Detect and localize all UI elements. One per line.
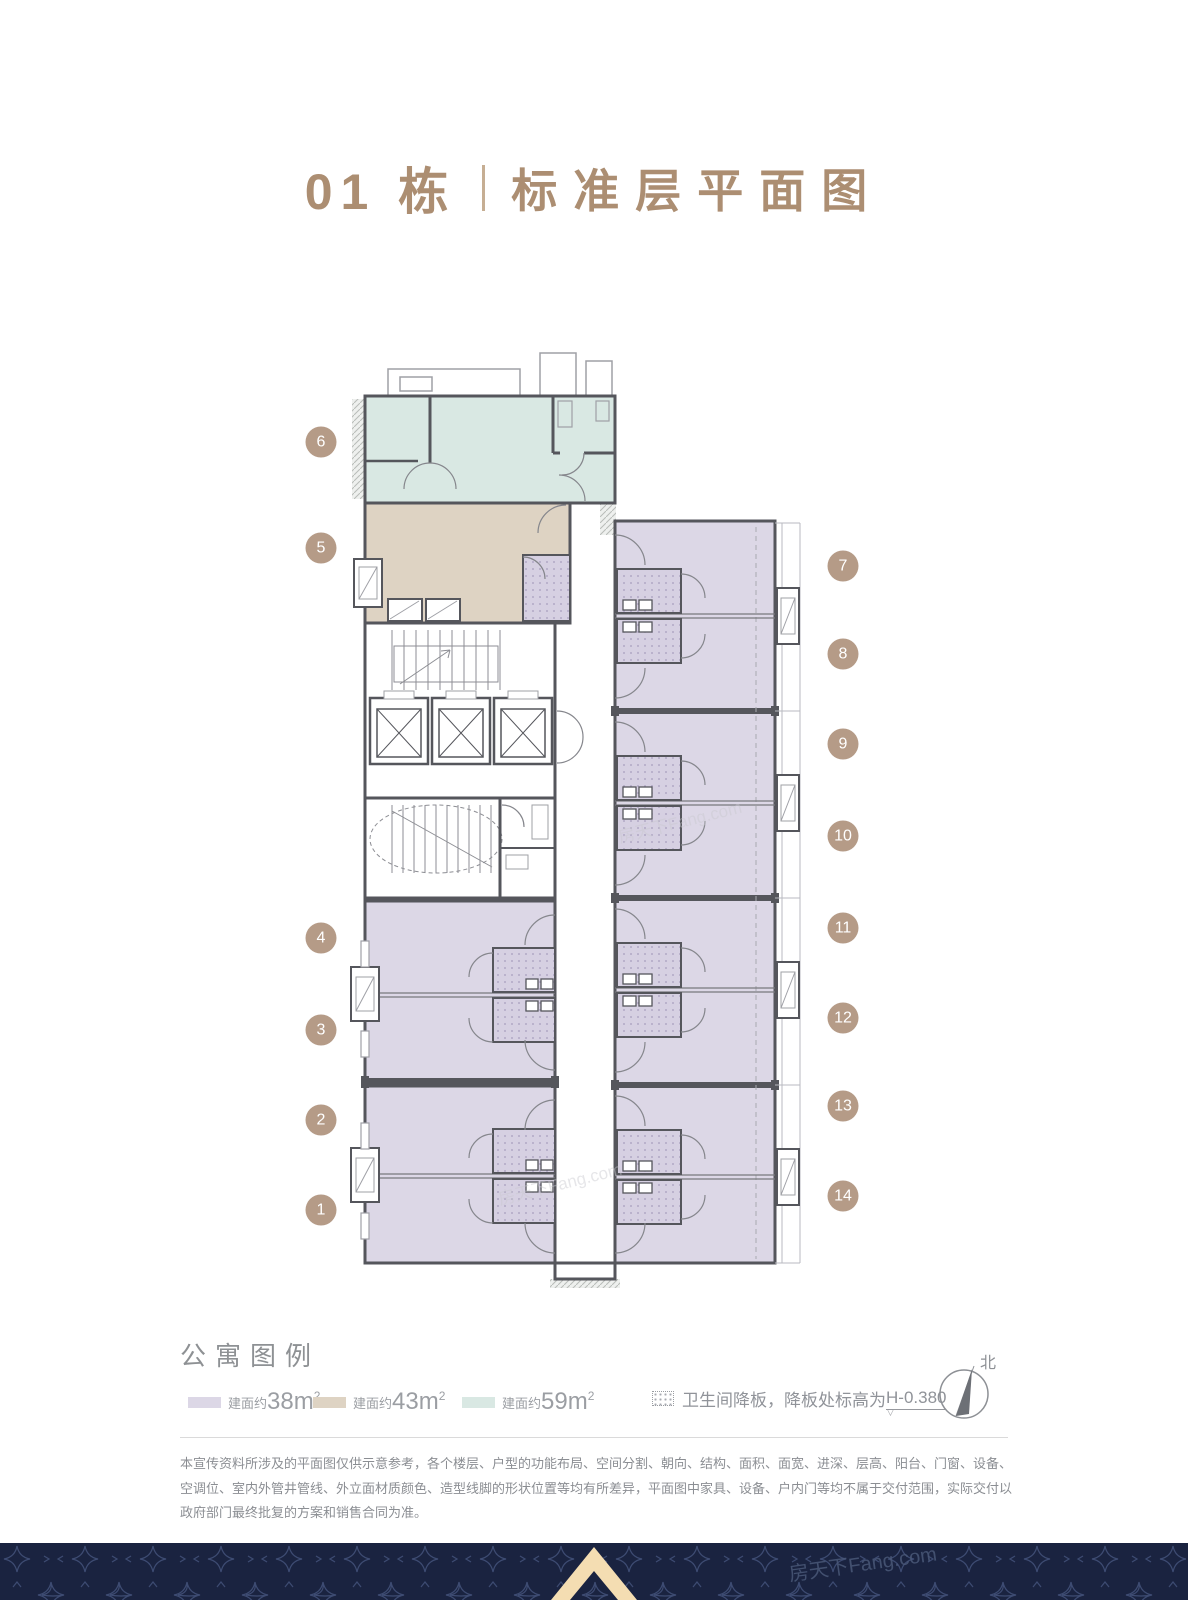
unit-6-area-59 [365,396,615,503]
page-title: 01 栋 标准层平面图 [0,152,1188,224]
unit-badge-4: 4 [306,923,337,954]
drop-slab-text: 卫生间降板，降板处标高为 [682,1386,886,1411]
legend-title: 公寓图例 [180,1336,1008,1373]
drop-slab-swatch [652,1391,674,1406]
legend-prefix: 建面约 [502,1393,541,1412]
unit-badge-12: 12 [828,1003,859,1034]
compass-north-label: 北 [980,1354,996,1372]
footer-band: 房天下Fang.com [0,1543,1188,1600]
unit-badge-9: 9 [828,729,859,760]
legend-swatch-43 [313,1397,346,1408]
floor-plan: 房天下Fang.com 房天下Fang.com 1 2 3 4 5 6 7 8 … [300,343,870,1293]
unit-badge-1: 1 [306,1195,337,1226]
building-number: 01 栋 [305,152,457,224]
legend-area-value: 43m2 [392,1388,445,1416]
legend-prefix: 建面约 [353,1393,392,1412]
legend-item-43: 建面约 43m2 [313,1388,445,1416]
unit-badge-11: 11 [828,913,859,944]
unit-badge-5: 5 [306,533,337,564]
title-separator [482,165,485,211]
legend-area-value: 59m2 [541,1388,594,1416]
plan-name: 标准层平面图 [511,155,883,221]
north-compass-icon: 北 [936,1352,1006,1428]
disclaimer-text: 本宣传资料所涉及的平面图仅供示意参考，各个楼层、户型的功能布局、空间分割、朝向、… [180,1452,1012,1526]
elevator-icons [370,691,552,764]
legend: 公寓图例 建面约 38m2 建面约 43m2 建面约 59m2 卫生间降板，降板… [180,1336,1008,1432]
unit-badge-8: 8 [828,639,859,670]
unit-badge-14: 14 [828,1181,859,1212]
legend-swatch-59 [462,1397,495,1408]
unit-badge-2: 2 [306,1105,337,1136]
room-blocks [365,396,775,1279]
drop-slab-note: 卫生间降板，降板处标高为 H-0.380▽ [652,1386,946,1411]
corridor-end [555,1263,615,1279]
unit-badge-7: 7 [828,551,859,582]
legend-swatch-38 [188,1397,221,1408]
balcony-top [388,353,612,396]
unit-badge-3: 3 [306,1015,337,1046]
unit-badge-10: 10 [828,821,859,852]
legend-item-38: 建面约 38m2 [188,1388,320,1416]
legend-prefix: 建面约 [228,1393,267,1412]
level-marker-icon: ▽ [887,1409,894,1415]
unit-badge-13: 13 [828,1091,859,1122]
legend-item-59: 建面约 59m2 [462,1388,594,1416]
divider-line [180,1437,1008,1438]
unit-badge-6: 6 [306,427,337,458]
floor-plan-drawing: 房天下Fang.com 房天下Fang.com [300,343,870,1293]
